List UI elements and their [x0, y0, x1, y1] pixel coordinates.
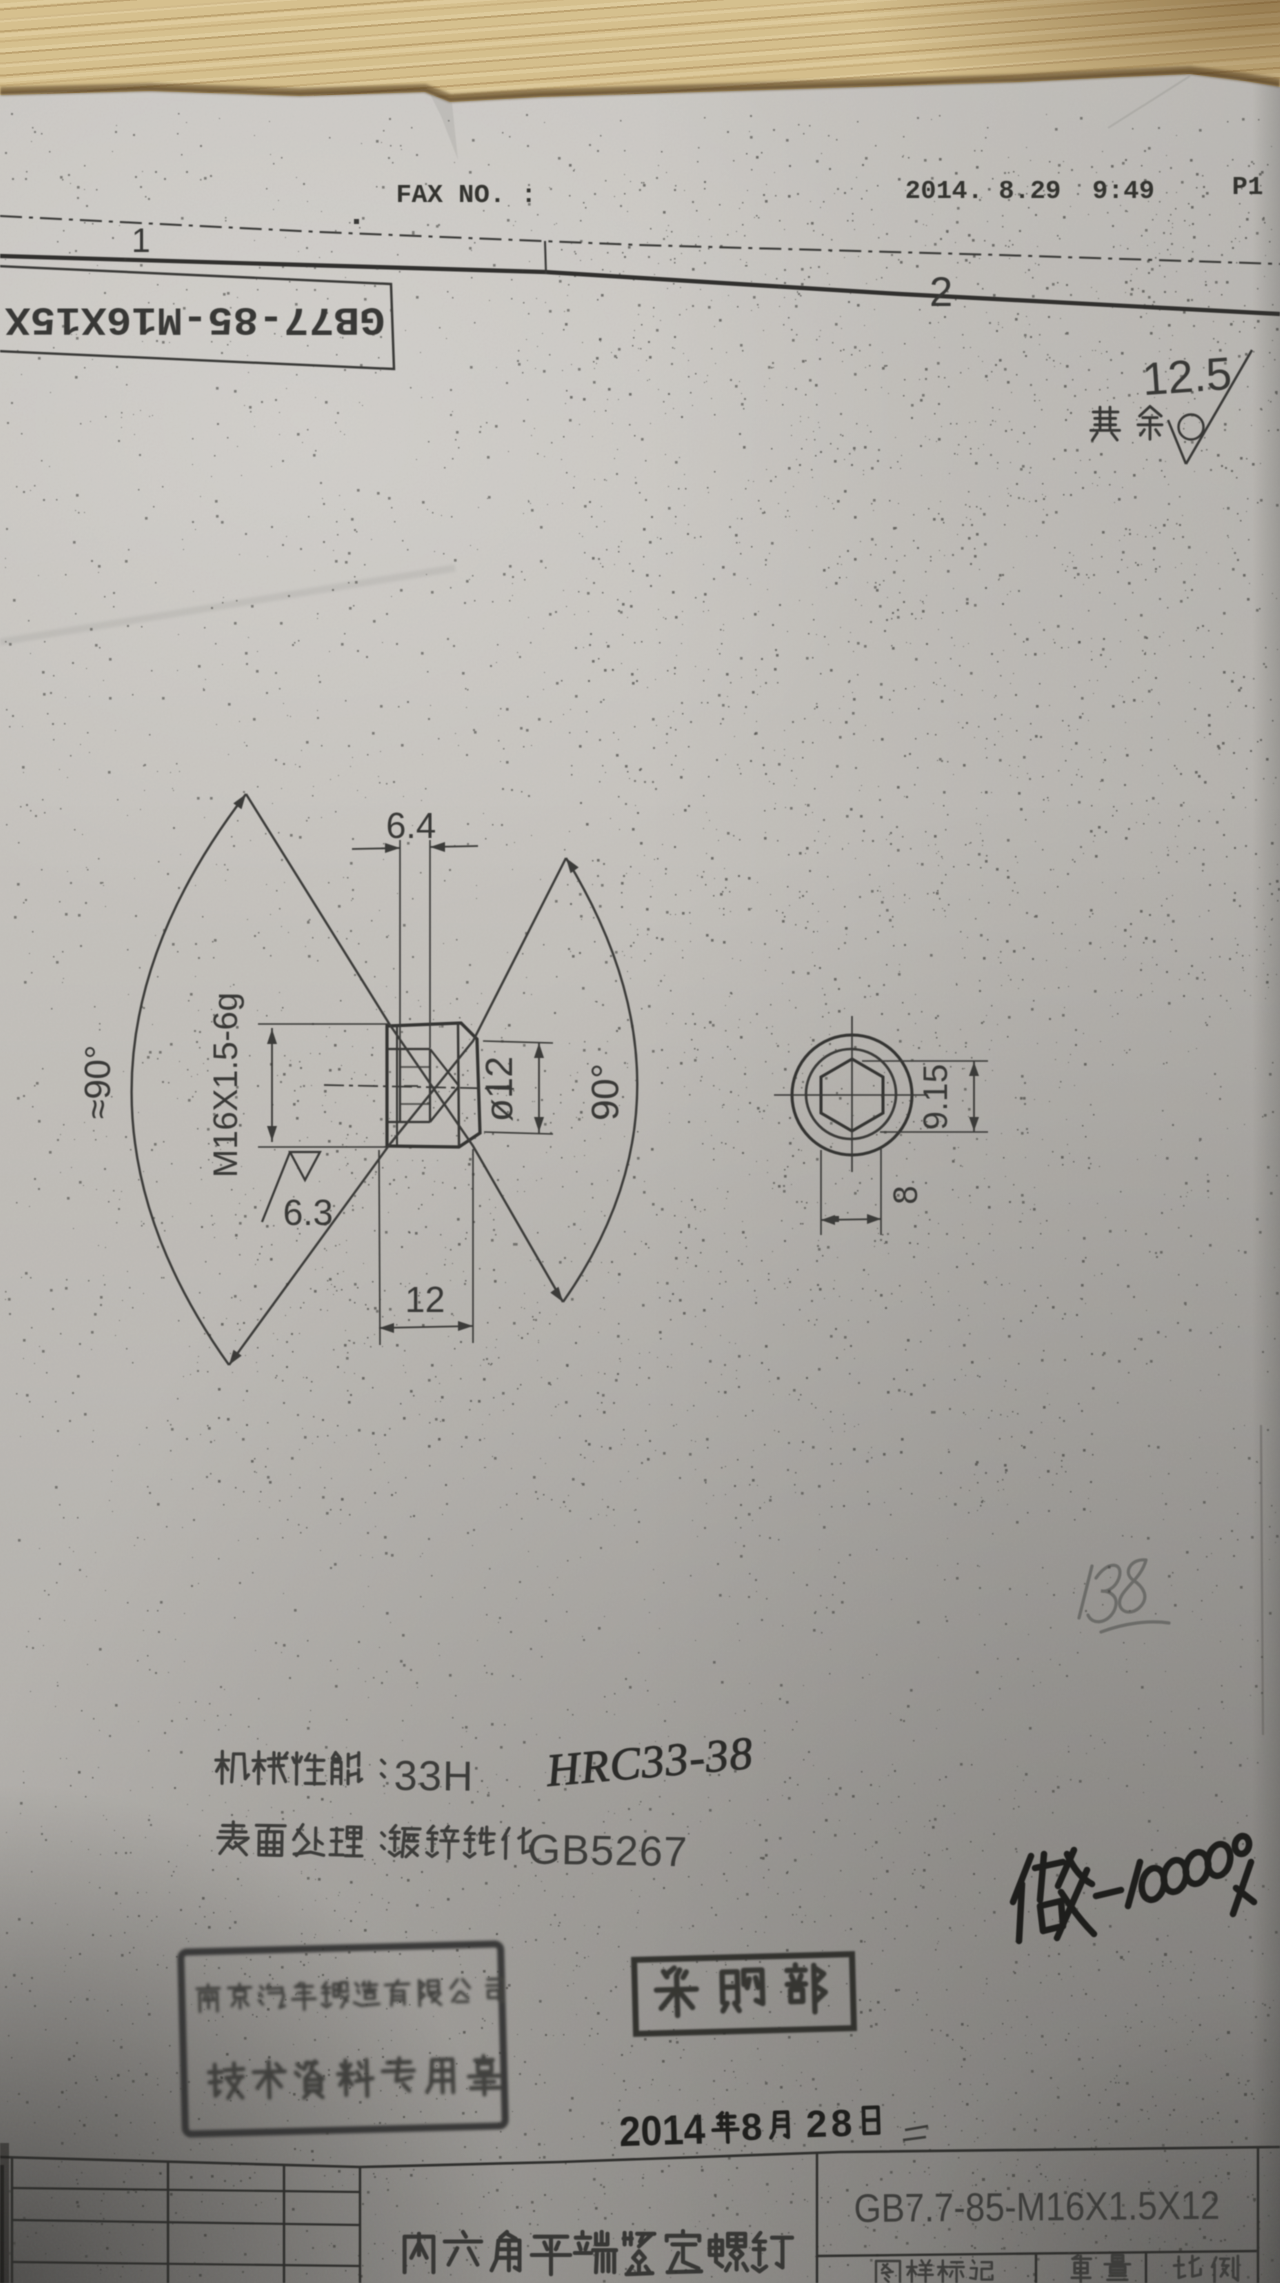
svg-text:8: 8	[740, 2107, 762, 2150]
svg-text:2014: 2014	[618, 2105, 706, 2155]
svg-text:1: 1	[132, 222, 151, 260]
svg-text:6.4: 6.4	[386, 805, 436, 846]
svg-text:GB7.7-85-M16X1.5X12: GB7.7-85-M16X1.5X12	[854, 2184, 1220, 2231]
svg-text:8: 8	[887, 1186, 925, 1205]
svg-text:M16X1.5-6g: M16X1.5-6g	[207, 992, 245, 1177]
svg-text:12.5: 12.5	[1140, 347, 1233, 405]
svg-text:8: 8	[830, 2103, 852, 2146]
svg-text:ø12: ø12	[479, 1056, 521, 1121]
svg-text:33H: 33H	[394, 1752, 475, 1800]
svg-text:≈90°: ≈90°	[77, 1045, 118, 1119]
svg-text:P1: P1	[1232, 172, 1263, 202]
svg-text:FAX NO. :: FAX NO. :	[396, 180, 536, 210]
svg-text:6.3: 6.3	[283, 1192, 333, 1233]
svg-text:2014. 8.29 9:49: 2014. 8.29 9:49	[905, 176, 1155, 206]
svg-text:GB5267: GB5267	[527, 1825, 688, 1875]
svg-text:2: 2	[929, 268, 952, 315]
svg-text:GB77-85-M16X15X: GB77-85-M16X15X	[5, 296, 385, 341]
svg-text:12: 12	[405, 1279, 445, 1320]
svg-text:2: 2	[805, 2104, 827, 2147]
svg-text:9.15: 9.15	[917, 1064, 955, 1130]
